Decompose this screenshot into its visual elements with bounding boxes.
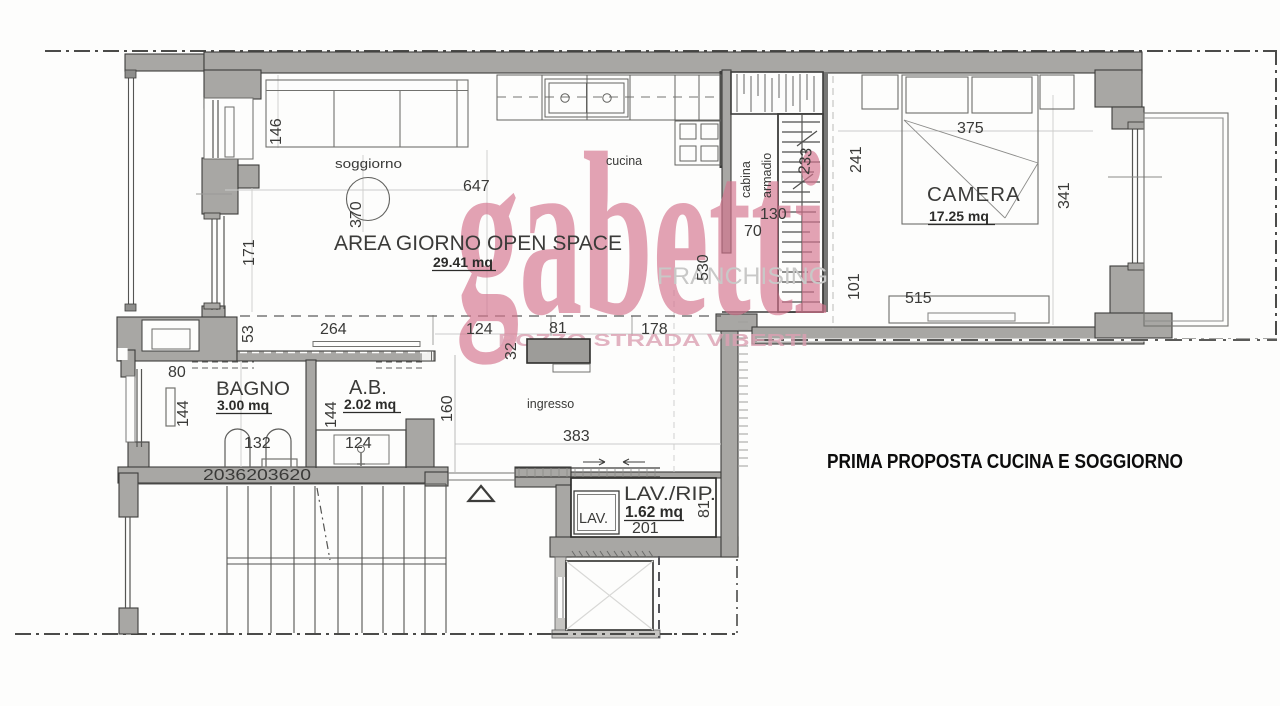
svg-text:124: 124	[345, 435, 372, 452]
svg-text:81: 81	[696, 500, 713, 518]
svg-text:130: 130	[760, 206, 787, 223]
svg-text:29.41 mq: 29.41 mq	[433, 254, 493, 270]
svg-text:70: 70	[744, 223, 762, 240]
svg-text:144: 144	[323, 401, 340, 428]
svg-text:241: 241	[848, 146, 865, 173]
svg-text:80: 80	[168, 364, 186, 381]
svg-text:264: 264	[320, 321, 347, 338]
svg-text:32: 32	[503, 342, 520, 360]
svg-text:132: 132	[244, 435, 271, 452]
svg-text:2.02 mq: 2.02 mq	[344, 396, 396, 412]
svg-text:FRANCHISING: FRANCHISING	[657, 263, 828, 290]
svg-text:101: 101	[846, 273, 863, 300]
svg-text:124: 124	[466, 321, 493, 338]
svg-text:178: 178	[641, 321, 668, 338]
svg-text:LAV.: LAV.	[579, 511, 608, 527]
svg-text:201: 201	[632, 520, 659, 537]
svg-text:soggiorno: soggiorno	[335, 157, 402, 171]
svg-text:515: 515	[905, 290, 932, 307]
svg-text:144: 144	[175, 400, 192, 427]
svg-text:375: 375	[957, 120, 984, 137]
svg-text:armadio: armadio	[760, 153, 774, 198]
svg-text:53: 53	[240, 325, 257, 343]
svg-text:647: 647	[463, 178, 490, 195]
svg-text:370: 370	[348, 201, 365, 228]
svg-text:383: 383	[563, 428, 590, 445]
svg-text:PRIMA PROPOSTA CUCINA E SOGGIO: PRIMA PROPOSTA CUCINA E SOGGIORNO	[827, 451, 1183, 473]
svg-text:CAMERA: CAMERA	[927, 183, 1021, 206]
svg-text:3.00 mq: 3.00 mq	[217, 397, 269, 413]
svg-text:341: 341	[1056, 182, 1073, 209]
svg-text:530: 530	[695, 254, 712, 281]
svg-text:ingresso: ingresso	[527, 397, 574, 411]
svg-text:2036203620: 2036203620	[203, 467, 311, 484]
svg-text:233: 233	[796, 147, 816, 175]
svg-text:cucina: cucina	[606, 154, 642, 168]
svg-text:160: 160	[439, 395, 456, 422]
svg-text:81: 81	[549, 320, 567, 337]
svg-text:AREA GIORNO OPEN SPACE: AREA GIORNO OPEN SPACE	[334, 232, 622, 255]
svg-text:146: 146	[268, 118, 285, 145]
svg-text:171: 171	[241, 239, 258, 266]
svg-text:1.62 mq: 1.62 mq	[625, 504, 683, 521]
svg-text:17.25 mq: 17.25 mq	[929, 208, 989, 224]
svg-text:cabina: cabina	[739, 161, 753, 198]
